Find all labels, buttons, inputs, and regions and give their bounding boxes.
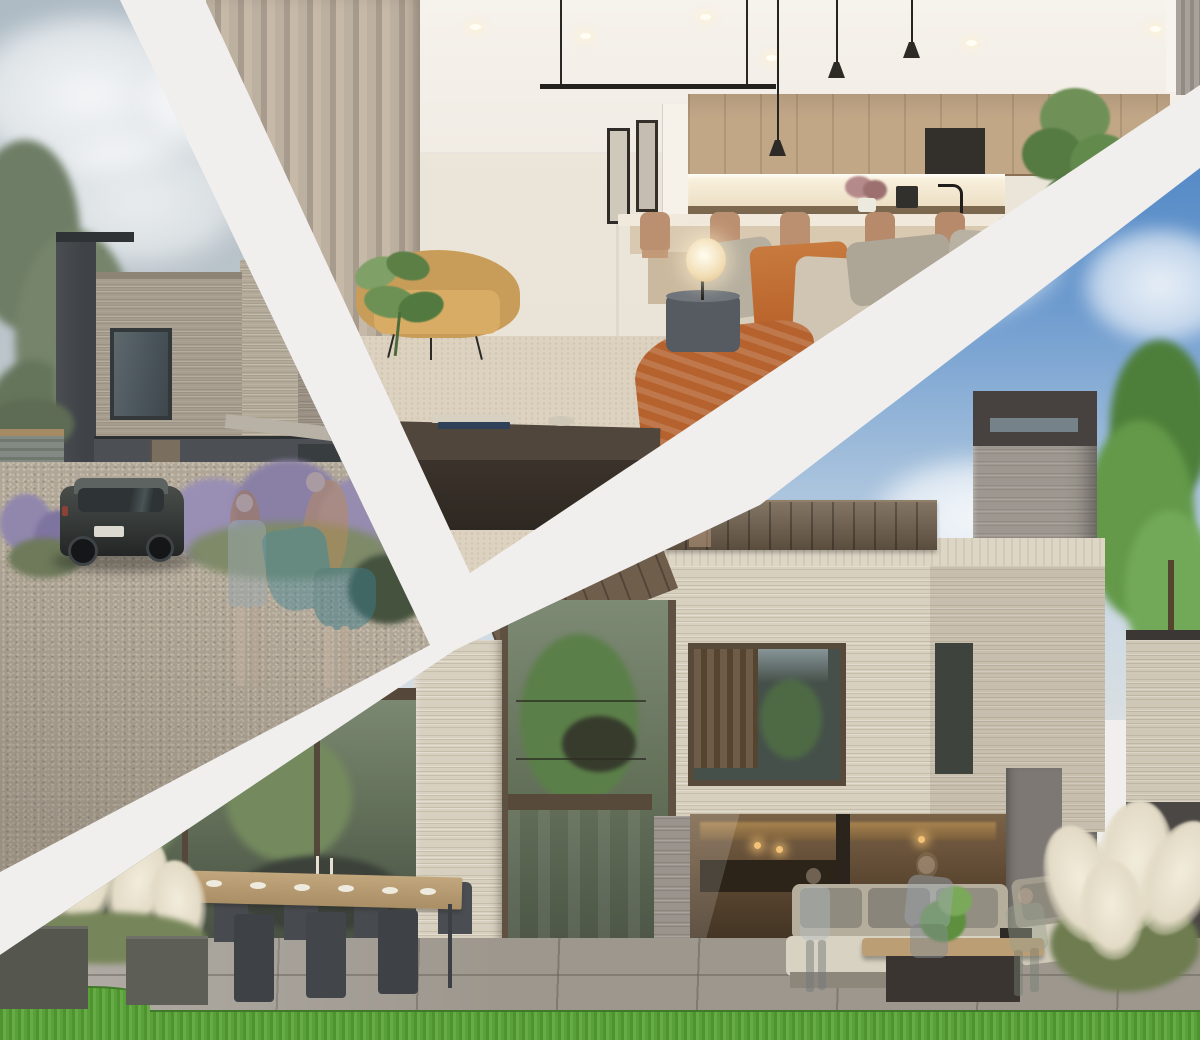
flowers	[863, 180, 887, 200]
chimney-vent-slot	[990, 418, 1078, 432]
photo-collage-canvas	[0, 0, 1200, 1040]
fence-timber-cap	[0, 429, 64, 436]
window-slats	[694, 649, 758, 768]
dining-chair-near	[234, 914, 274, 1002]
pendant-cord	[560, 0, 562, 84]
linear-pendant-light	[540, 84, 776, 89]
candles	[316, 856, 319, 874]
car-plate	[94, 526, 124, 537]
atrium-transom	[508, 794, 652, 810]
ghost-head	[236, 494, 253, 512]
espresso-machine	[896, 186, 918, 208]
ghost-legs	[910, 924, 948, 958]
ghost-figure-woman-sitting	[900, 852, 960, 964]
window-sky-glint	[758, 649, 828, 683]
recessed-spotlight	[766, 55, 777, 61]
table-leg	[448, 904, 452, 988]
kitchen-faucet	[938, 184, 963, 213]
table-lamp-glow	[686, 238, 726, 282]
ghost-leg	[324, 626, 334, 688]
recessed-spotlight	[470, 24, 481, 30]
chimney-cap-rail	[56, 232, 134, 242]
ghost-torso	[228, 520, 266, 608]
ghost-head	[918, 856, 935, 874]
car-wheel	[146, 534, 174, 562]
planter-box	[126, 936, 208, 1005]
balcony-rail	[516, 700, 646, 702]
recessed-spotlight	[1150, 26, 1161, 32]
recessed-spotlight	[966, 40, 977, 46]
curtain-right	[1176, 0, 1200, 95]
ghost-torso	[800, 886, 830, 940]
recessed-spotlight	[700, 14, 711, 20]
pendant-cord	[911, 0, 913, 42]
car-taillight	[62, 506, 68, 516]
recessed-spotlight	[580, 33, 591, 39]
parked-car	[50, 470, 200, 575]
ghost-torso	[903, 874, 954, 931]
window-tree-reflection	[760, 679, 822, 759]
car-glass	[78, 488, 164, 512]
ghost-skirt	[314, 568, 376, 630]
pendant-cord	[777, 0, 779, 140]
dining-chair-near	[306, 912, 346, 998]
pendant-cord	[746, 0, 748, 84]
wall-art-frame	[607, 128, 630, 224]
table-bowl	[548, 416, 574, 426]
ghost-leg	[250, 606, 259, 688]
ghost-head	[306, 472, 325, 492]
side-table	[666, 294, 740, 352]
ghost-head	[1018, 888, 1033, 904]
ghost-leg	[818, 940, 826, 990]
window-beside-chimney	[935, 643, 973, 774]
pampas-cluster-right	[1040, 800, 1200, 1012]
art-inner	[610, 131, 627, 221]
neighbour-brick	[1126, 640, 1200, 802]
ghost-leg	[806, 940, 814, 992]
ghost-figure-child	[798, 868, 834, 996]
lawn	[0, 1010, 1200, 1040]
house-window	[110, 328, 172, 420]
dining-chair-near	[378, 910, 418, 994]
potted-plant	[346, 252, 456, 356]
art-inner	[639, 123, 655, 209]
ghost-leg	[1014, 950, 1023, 996]
plant-stems	[394, 312, 402, 356]
table-books	[438, 422, 510, 429]
upper-window	[688, 643, 846, 786]
ghost-leg	[1030, 948, 1039, 992]
car-wheel	[68, 536, 98, 566]
pendant-cord	[836, 0, 838, 62]
neighbour-roof-edge	[1126, 630, 1200, 640]
wall-art-frame	[636, 120, 658, 212]
ghost-leg	[236, 606, 245, 686]
ghost-head	[806, 868, 821, 884]
vase	[858, 198, 876, 212]
ghost-leg	[340, 626, 350, 684]
flower-vase	[845, 176, 889, 212]
grey-brick-pier	[654, 816, 690, 958]
house-parapet	[94, 272, 242, 279]
balcony-furniture	[562, 716, 636, 772]
